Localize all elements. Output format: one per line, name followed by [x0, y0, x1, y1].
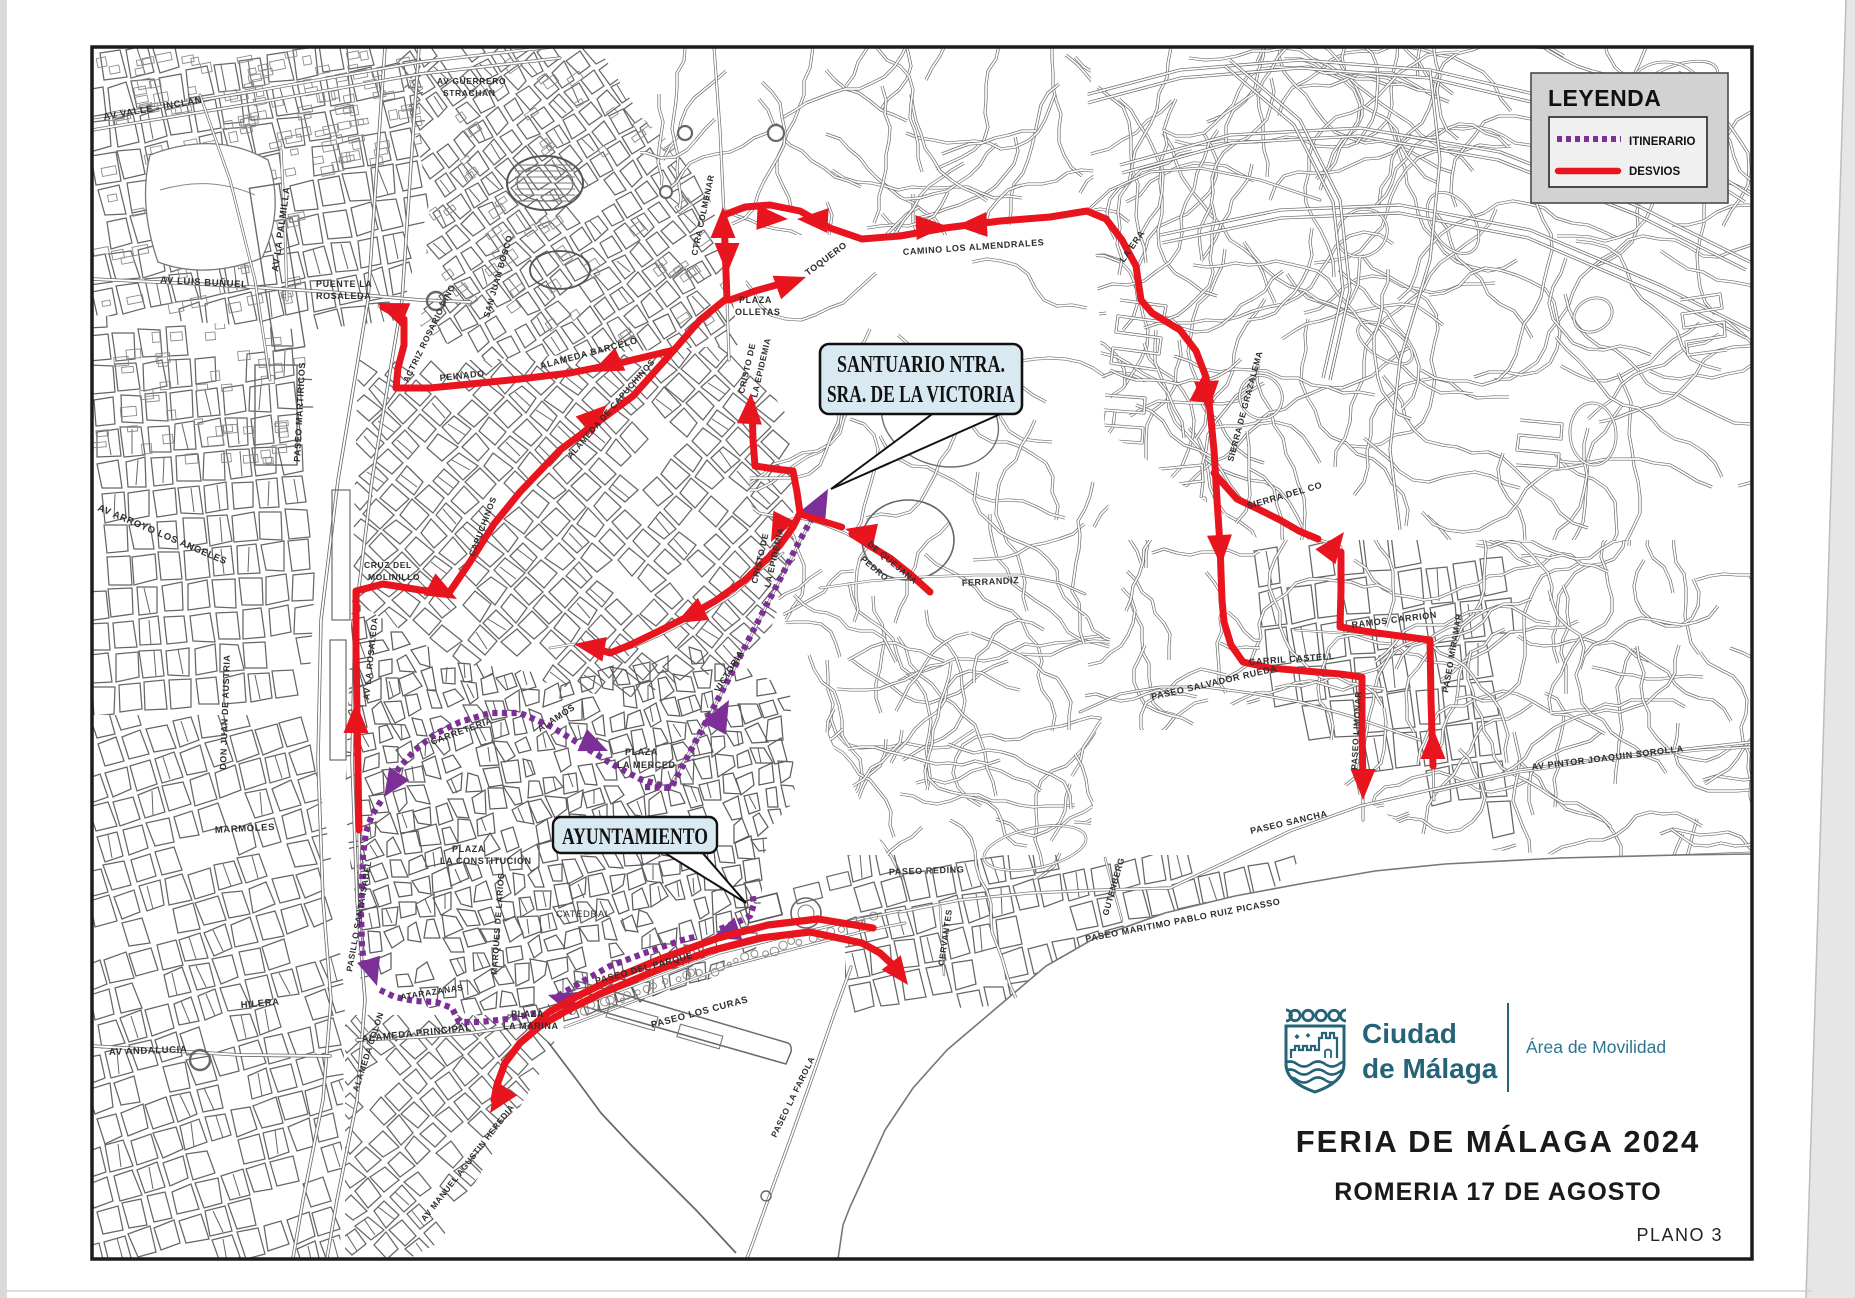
svg-text:ROMERIA 17 DE AGOSTO: ROMERIA 17 DE AGOSTO — [1334, 1178, 1661, 1206]
svg-text:AYUNTAMIENTO: AYUNTAMIENTO — [562, 824, 708, 849]
svg-text:LA MARINA: LA MARINA — [503, 1021, 559, 1031]
svg-text:SRA. DE LA VICTORIA: SRA. DE LA VICTORIA — [827, 382, 1015, 408]
svg-text:Ciudad: Ciudad — [1362, 1018, 1457, 1049]
svg-text:SANTUARIO NTRA.: SANTUARIO NTRA. — [837, 352, 1005, 378]
svg-text:FERIA DE MÁLAGA 2024: FERIA DE MÁLAGA 2024 — [1296, 1124, 1701, 1159]
svg-text:CRUZ DEL: CRUZ DEL — [364, 560, 412, 570]
svg-text:de Málaga: de Málaga — [1362, 1053, 1498, 1084]
svg-text:LA MERCED: LA MERCED — [617, 760, 676, 770]
svg-text:PLAZA: PLAZA — [739, 295, 772, 305]
svg-text:OLLETAS: OLLETAS — [735, 307, 781, 317]
svg-text:Área de Movilidad: Área de Movilidad — [1526, 1037, 1666, 1057]
svg-text:PLAZA: PLAZA — [625, 747, 658, 757]
svg-text:LA CONSTITUCION: LA CONSTITUCION — [440, 856, 532, 866]
svg-text:MOLINILLO: MOLINILLO — [368, 572, 420, 582]
svg-text:PUENTE LA: PUENTE LA — [316, 279, 372, 289]
svg-text:PLAZA: PLAZA — [452, 844, 485, 854]
svg-text:DESVIOS: DESVIOS — [1629, 166, 1680, 178]
svg-text:AV GUERRERO: AV GUERRERO — [437, 76, 506, 86]
svg-text:PLANO 3: PLANO 3 — [1636, 1225, 1723, 1245]
svg-text:STRACHAN: STRACHAN — [443, 88, 496, 98]
svg-text:ITINERARIO: ITINERARIO — [1629, 136, 1696, 148]
svg-text:ROSALEDA: ROSALEDA — [316, 291, 371, 301]
svg-text:LEYENDA: LEYENDA — [1548, 85, 1661, 111]
svg-text:CATEDRAL: CATEDRAL — [556, 909, 611, 920]
svg-text:PLAZA: PLAZA — [511, 1009, 544, 1019]
